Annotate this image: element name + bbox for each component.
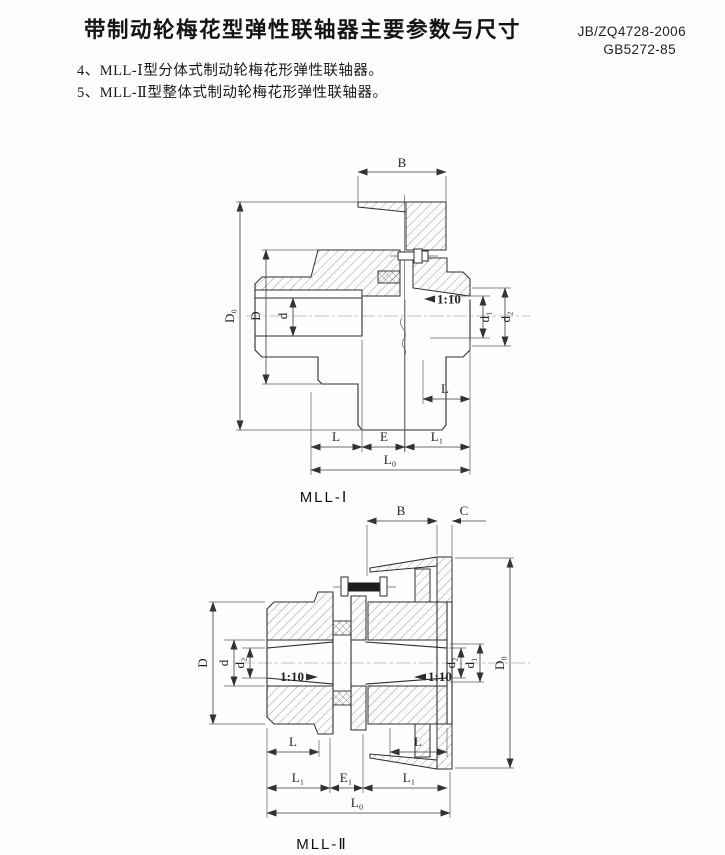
fig2-label-L1-right: L₁ bbox=[403, 770, 415, 785]
fig2-label-L-right: L bbox=[414, 734, 422, 749]
fig2-label-E1: E₁ bbox=[340, 770, 352, 785]
fig1-label-L1: L₁ bbox=[431, 429, 443, 444]
fig2-label-d1: d₁ bbox=[462, 657, 477, 668]
figure2-dimensions: B C D₀ D d d₂ 1:1 bbox=[195, 503, 514, 818]
figure1-mll1: B D₀ D d 1:10 d₁ d₂ bbox=[222, 155, 530, 506]
fig2-label-taper-right: 1:10 bbox=[428, 669, 452, 684]
fig1-label-d2: d₂ bbox=[498, 311, 513, 322]
fig1-label-D0: D₀ bbox=[222, 309, 237, 323]
fig2-label-B: B bbox=[397, 503, 406, 518]
fig1-label-B: B bbox=[398, 155, 407, 170]
fig1-label-d: d bbox=[275, 312, 290, 319]
figure2-caption: MLL-Ⅱ bbox=[296, 836, 348, 853]
fig2-label-L-left: L bbox=[289, 734, 297, 749]
fig2-label-L0: L₀ bbox=[351, 795, 363, 810]
fig1-label-L-hub-right: L bbox=[441, 381, 449, 396]
figure1-caption: MLL-Ⅰ bbox=[300, 489, 349, 506]
fig2-label-C: C bbox=[460, 503, 469, 518]
fig1-label-taper: 1:10 bbox=[437, 292, 461, 307]
fig2-label-d2-left: d₂ bbox=[232, 657, 247, 668]
fig2-label-taper-left: 1:10 bbox=[280, 669, 304, 684]
fig1-label-L0: L₀ bbox=[384, 452, 396, 467]
fig2-label-d2-right: d₂ bbox=[443, 657, 458, 668]
fig1-label-d1: d₁ bbox=[477, 311, 492, 322]
figure2-mll2: B C D₀ D d d₂ 1:1 bbox=[195, 503, 530, 853]
fig1-label-D: D bbox=[248, 311, 263, 320]
fig1-label-E: E bbox=[380, 429, 388, 444]
fig2-label-d: d bbox=[216, 659, 231, 666]
coupling-drawings: B D₀ D d 1:10 d₁ d₂ bbox=[0, 0, 725, 855]
fig2-label-D0: D₀ bbox=[492, 656, 507, 670]
fig1-label-L: L bbox=[332, 429, 340, 444]
fig2-label-D: D bbox=[195, 658, 210, 667]
fig2-label-L1-left: L₁ bbox=[292, 770, 304, 785]
